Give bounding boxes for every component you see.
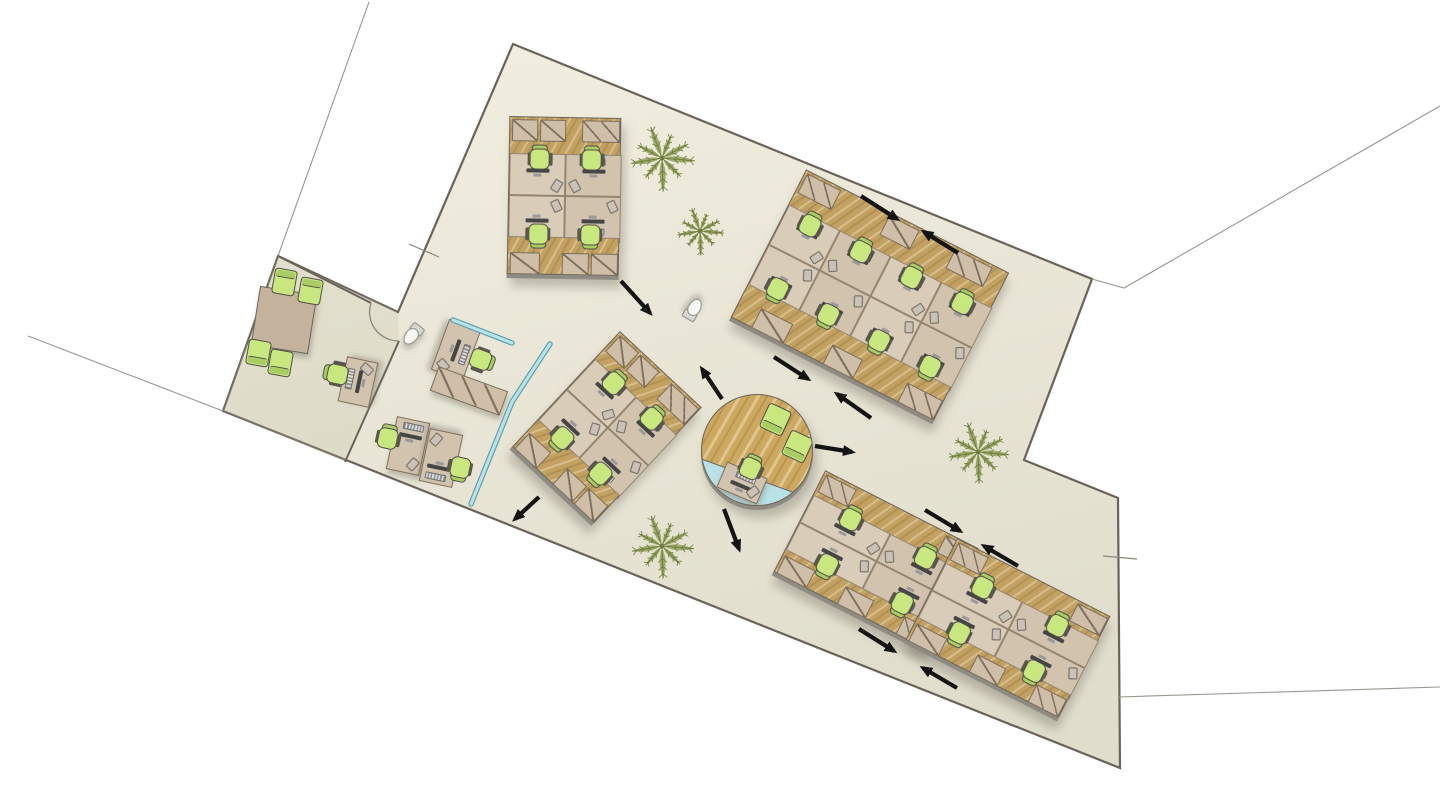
flow-arrow	[515, 497, 539, 519]
flow-arrow	[837, 394, 871, 418]
glass-partition-fill	[453, 320, 512, 343]
flow-arrow	[859, 629, 894, 651]
flow-arrow	[774, 357, 808, 379]
plant-icon	[948, 421, 1009, 483]
plant-icon	[677, 207, 724, 255]
plant-icon	[630, 126, 695, 192]
flow-arrow	[984, 546, 1018, 566]
flow-arrow	[724, 509, 739, 549]
flow-arrow	[924, 232, 958, 253]
flow-arrow	[923, 668, 957, 688]
flow-arrow	[621, 281, 650, 313]
annotation-layer	[0, 0, 1440, 795]
flow-arrow	[925, 510, 960, 531]
glass-partition	[471, 344, 550, 504]
floor-plan-scene	[0, 0, 1440, 795]
flow-arrow	[861, 196, 897, 219]
plant-icon	[631, 515, 694, 579]
flow-arrow	[815, 446, 852, 452]
flow-arrow	[702, 369, 722, 399]
